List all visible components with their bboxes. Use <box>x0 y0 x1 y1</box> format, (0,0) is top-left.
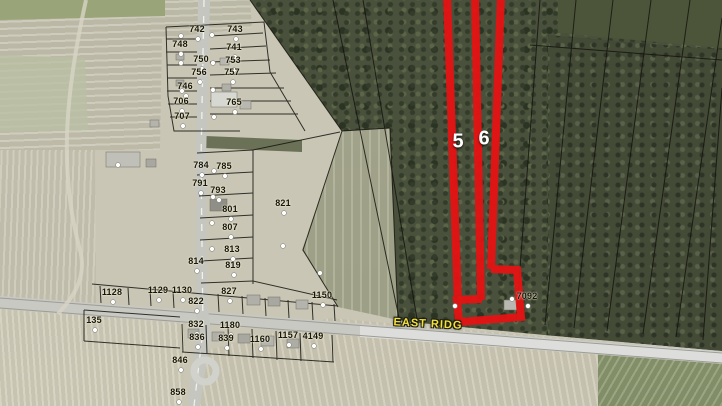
address-point-dot <box>210 33 215 38</box>
address-point-dot <box>217 198 222 203</box>
field-lane <box>58 0 86 314</box>
address-point-dot <box>211 88 216 93</box>
address-point-dot <box>210 247 215 252</box>
address-point-dot <box>180 109 185 114</box>
address-point-dot <box>177 400 182 405</box>
map-vector-overlay <box>0 0 722 406</box>
gis-parcel-map-canvas[interactable]: 5 6 EAST RIDG 74274374874175075375675774… <box>0 0 722 406</box>
address-point-dot <box>111 300 116 305</box>
address-point-dot <box>212 115 217 120</box>
address-point-dot <box>184 94 189 99</box>
address-point-dot <box>199 191 204 196</box>
highlighted-parcel-6-east-edge[interactable] <box>491 0 501 269</box>
address-point-dot <box>318 271 323 276</box>
address-point-dot <box>231 257 236 262</box>
address-point-dot <box>200 67 205 72</box>
address-point-dot <box>233 55 238 60</box>
address-point-dot <box>229 235 234 240</box>
address-point-dot <box>210 221 215 226</box>
address-point-dot <box>211 61 216 66</box>
address-point-dot <box>157 298 162 303</box>
address-point-dot <box>312 344 317 349</box>
address-point-dot <box>196 345 201 350</box>
address-point-dot <box>232 273 237 278</box>
address-point-dot <box>234 37 239 42</box>
address-point-dot <box>179 52 184 57</box>
address-point-dot <box>287 343 292 348</box>
address-point-dot <box>232 68 237 73</box>
address-point-dot <box>510 297 515 302</box>
address-point-dot <box>196 37 201 42</box>
address-point-dot <box>229 333 234 338</box>
address-point-dot <box>223 174 228 179</box>
address-point-dot <box>195 309 200 314</box>
highlighted-parcel-bottom-hook[interactable] <box>457 269 521 322</box>
address-point-dot <box>453 304 458 309</box>
address-point-dot <box>195 269 200 274</box>
address-point-dot <box>228 299 233 304</box>
address-point-dot <box>211 195 216 200</box>
address-point-dot <box>259 347 264 352</box>
address-point-dot <box>181 124 186 129</box>
address-point-dot <box>180 89 185 94</box>
address-point-dot <box>116 163 121 168</box>
address-point-dot <box>231 80 236 85</box>
address-point-dot <box>229 217 234 222</box>
address-point-dot <box>281 244 286 249</box>
address-point-dot <box>93 328 98 333</box>
highlighted-parcel-5-west-edge[interactable] <box>447 0 458 303</box>
address-point-dot <box>321 303 326 308</box>
highlighted-parcel-shared-edge[interactable] <box>475 0 481 300</box>
road-horizontal <box>0 296 722 364</box>
address-point-dot <box>179 34 184 39</box>
address-point-dot <box>212 169 217 174</box>
address-point-dot <box>179 368 184 373</box>
address-point-dot <box>198 80 203 85</box>
address-point-dot <box>526 304 531 309</box>
address-point-dot <box>179 61 184 66</box>
address-point-dot <box>200 173 205 178</box>
address-point-dot <box>181 298 186 303</box>
address-point-dot <box>225 346 230 351</box>
address-point-dot <box>233 110 238 115</box>
address-point-dot <box>282 211 287 216</box>
address-point-dot <box>195 332 200 337</box>
